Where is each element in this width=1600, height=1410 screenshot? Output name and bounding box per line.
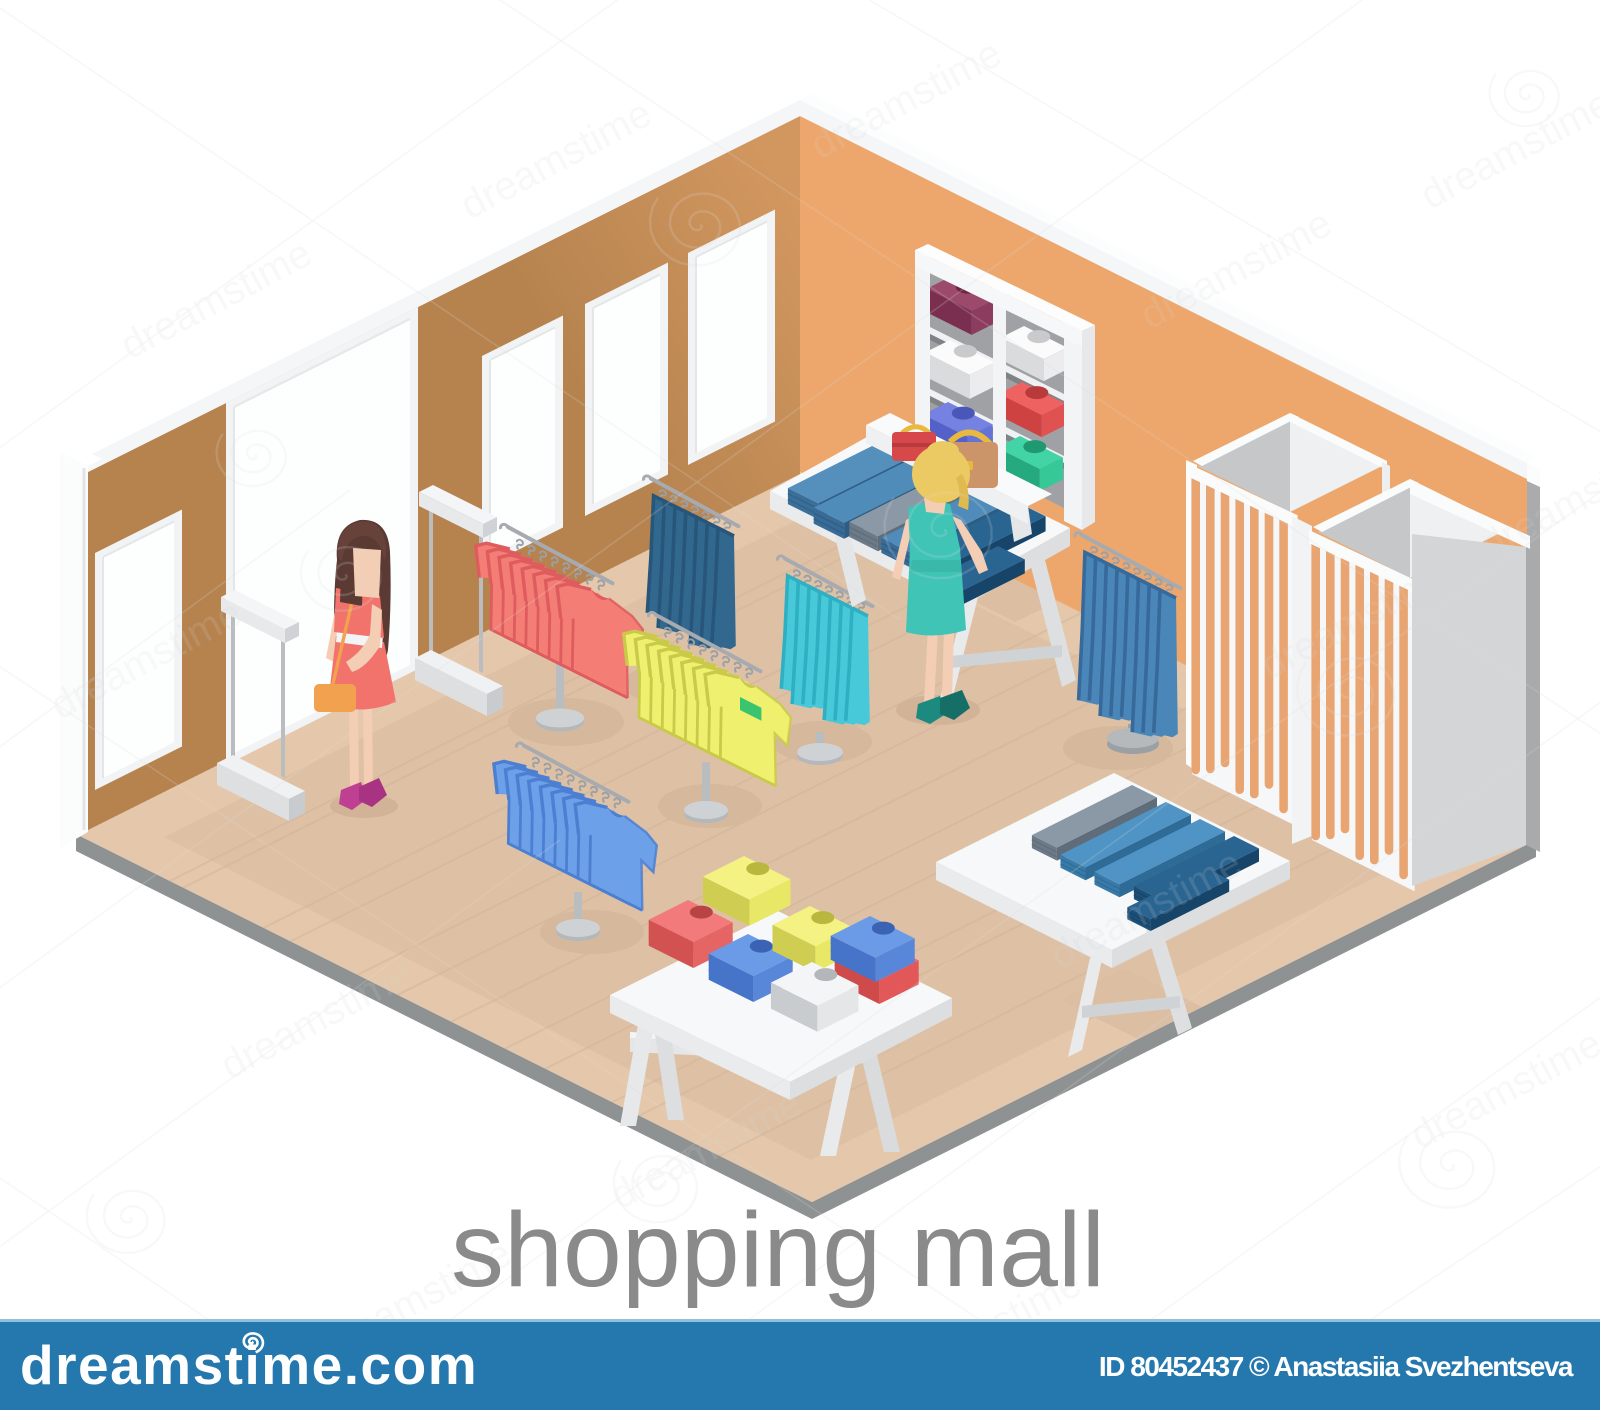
svg-text:ID 80452437 © Anastasiia Svezh: ID 80452437 © Anastasiia Svezhentseva xyxy=(1099,1351,1574,1382)
svg-text:shopping mall: shopping mall xyxy=(451,1191,1105,1309)
